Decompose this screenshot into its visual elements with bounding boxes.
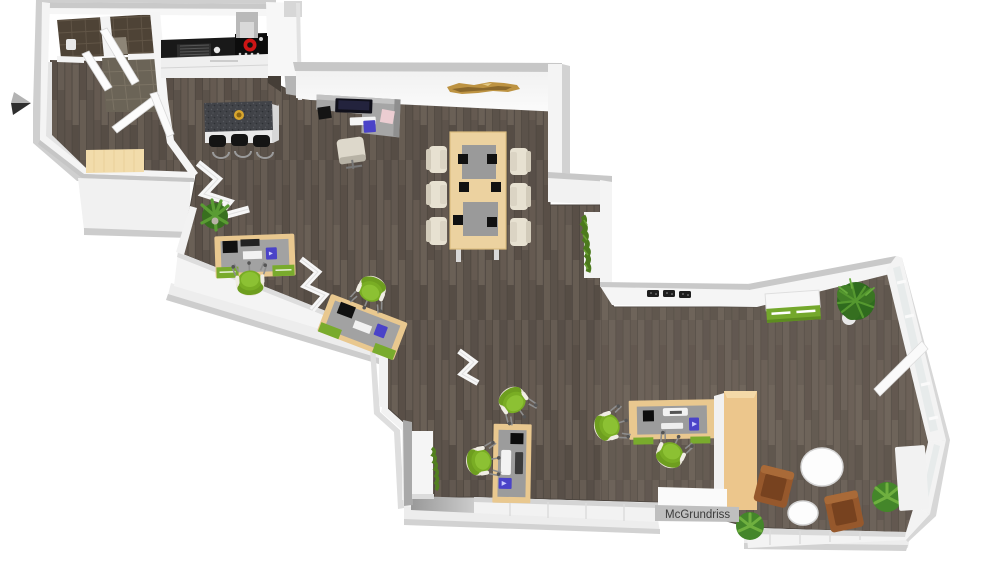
svg-text:McGrundriss: McGrundriss bbox=[665, 509, 730, 521]
